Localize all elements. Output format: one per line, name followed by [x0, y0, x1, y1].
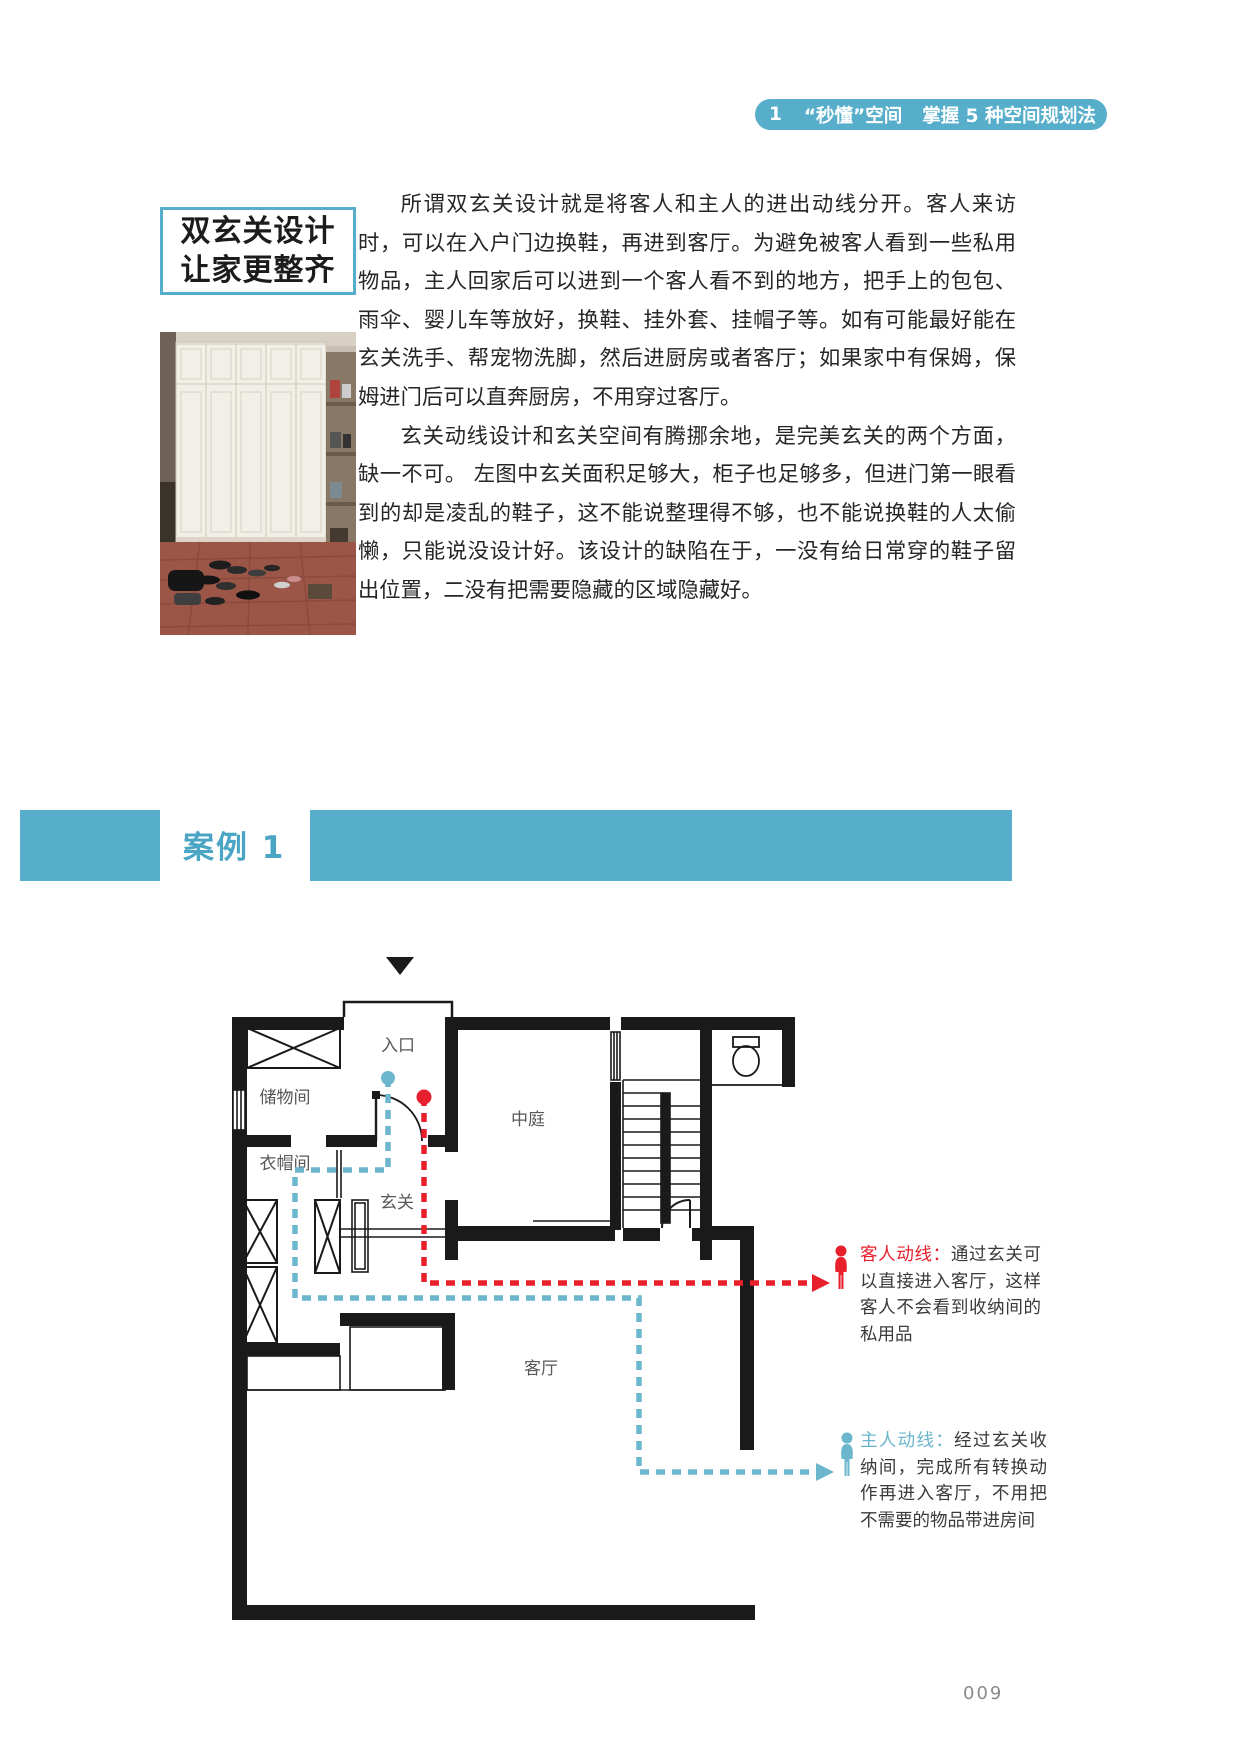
book-page: { "header": { "chapter_num": "1", "title…: [0, 0, 1241, 1755]
room-label-entrance: 入口: [381, 1036, 415, 1056]
room-label-storage: 储物间: [260, 1088, 311, 1108]
section-title-box: 双玄关设计 让家更整齐: [160, 207, 356, 295]
chapter-title-part1: “秒懂”空间: [804, 102, 902, 128]
entrance-arrow-icon: [386, 957, 414, 975]
room-label-atrium: 中庭: [511, 1110, 545, 1130]
chapter-title-part2: 掌握 5 种空间规划法: [922, 102, 1096, 128]
room-label-living: 客厅: [524, 1359, 558, 1379]
entrance-door: [372, 1091, 422, 1141]
case-banner-right-block: [310, 810, 1012, 881]
owner-route-label: 主人动线：: [860, 1431, 954, 1451]
section-title-line1: 双玄关设计: [181, 212, 336, 251]
owner-route-annotation: 主人动线：经过玄关收纳间，完成所有转换动作再进入客厅，不用把不需要的物品带进房间: [860, 1428, 1047, 1534]
guest-route-start-dot: [417, 1090, 432, 1105]
owner-person-icon: [841, 1433, 853, 1477]
article-paragraph-1: 所谓双玄关设计就是将客人和主人的进出动线分开。客人来访时，可以在入户门边换鞋，再…: [358, 186, 1016, 418]
entryway-photo: [160, 332, 356, 635]
article-paragraph-2: 玄关动线设计和玄关空间有腾挪余地，是完美玄关的两个方面，缺一不可。 左图中玄关面…: [358, 418, 1016, 611]
case-banner-label: 案例 1: [183, 822, 285, 867]
entryway-photo-illustration: [160, 332, 356, 635]
chapter-number: 1: [769, 104, 782, 125]
case-banner-left-block: [20, 810, 160, 881]
guest-person-icon: [835, 1246, 847, 1290]
stairs: [623, 1080, 700, 1228]
room-label-hall: 玄关: [380, 1193, 414, 1213]
chapter-header-bar: 1 “秒懂”空间 掌握 5 种空间规划法: [755, 99, 1107, 130]
plan-walls: [232, 1017, 795, 1620]
guest-route-arrowhead: [812, 1274, 830, 1292]
owner-route-arrowhead: [816, 1463, 834, 1481]
page-number: 009: [963, 1683, 1003, 1704]
owner-route-start-dot: [381, 1071, 395, 1085]
guest-route-label: 客人动线：: [860, 1245, 951, 1265]
section-title-line2: 让家更整齐: [181, 251, 336, 290]
guest-route-annotation: 客人动线：通过玄关可以直接进入客厅，这样客人不会看到收纳间的私用品: [860, 1242, 1041, 1348]
article-body: 所谓双玄关设计就是将客人和主人的进出动线分开。客人来访时，可以在入户门边换鞋，再…: [358, 186, 1016, 611]
